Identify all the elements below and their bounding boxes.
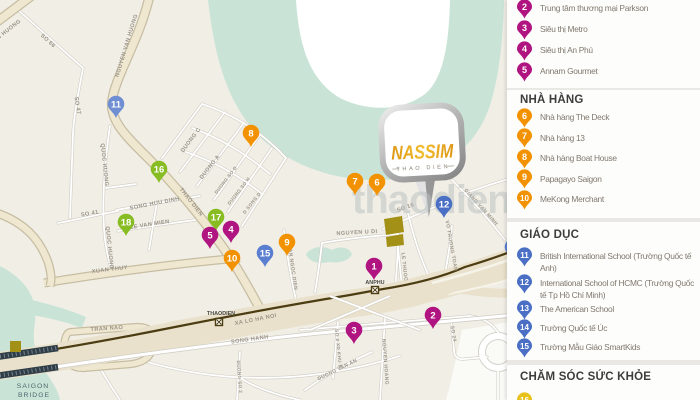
svg-text:BRIDGE: BRIDGE bbox=[18, 392, 50, 399]
svg-text:12: 12 bbox=[439, 199, 450, 210]
svg-text:4: 4 bbox=[522, 43, 527, 53]
svg-text:11: 11 bbox=[520, 250, 529, 259]
svg-text:4: 4 bbox=[228, 224, 234, 235]
svg-text:2: 2 bbox=[430, 310, 435, 321]
svg-text:7: 7 bbox=[522, 131, 527, 141]
svg-text:5: 5 bbox=[522, 64, 527, 74]
svg-text:17: 17 bbox=[211, 212, 222, 223]
svg-text:15: 15 bbox=[260, 248, 271, 259]
svg-text:13: 13 bbox=[520, 303, 529, 312]
svg-text:1: 1 bbox=[371, 261, 377, 272]
svg-text:9: 9 bbox=[284, 237, 289, 248]
svg-text:16: 16 bbox=[520, 396, 529, 400]
svg-text:5: 5 bbox=[207, 230, 213, 241]
svg-text:SAIGON: SAIGON bbox=[17, 383, 49, 390]
svg-text:6: 6 bbox=[374, 177, 379, 188]
svg-text:11: 11 bbox=[111, 99, 122, 110]
svg-text:15: 15 bbox=[520, 341, 529, 350]
svg-text:10: 10 bbox=[227, 253, 238, 264]
svg-text:8: 8 bbox=[522, 152, 527, 162]
svg-text:12: 12 bbox=[520, 277, 529, 286]
svg-text:THAODIEN: THAODIEN bbox=[207, 311, 235, 317]
svg-text:18: 18 bbox=[121, 217, 132, 228]
svg-text:7: 7 bbox=[352, 176, 357, 187]
svg-text:14: 14 bbox=[520, 322, 529, 331]
svg-text:16: 16 bbox=[154, 164, 165, 175]
svg-text:8: 8 bbox=[248, 128, 253, 139]
svg-text:6: 6 bbox=[522, 111, 527, 121]
svg-text:NASSIM: NASSIM bbox=[391, 140, 454, 164]
svg-text:9: 9 bbox=[522, 172, 527, 182]
svg-text:3: 3 bbox=[522, 22, 527, 32]
svg-text:ANPHU: ANPHU bbox=[365, 280, 384, 286]
svg-text:3: 3 bbox=[351, 325, 356, 336]
svg-text:2: 2 bbox=[522, 2, 527, 12]
svg-text:10: 10 bbox=[520, 194, 529, 203]
